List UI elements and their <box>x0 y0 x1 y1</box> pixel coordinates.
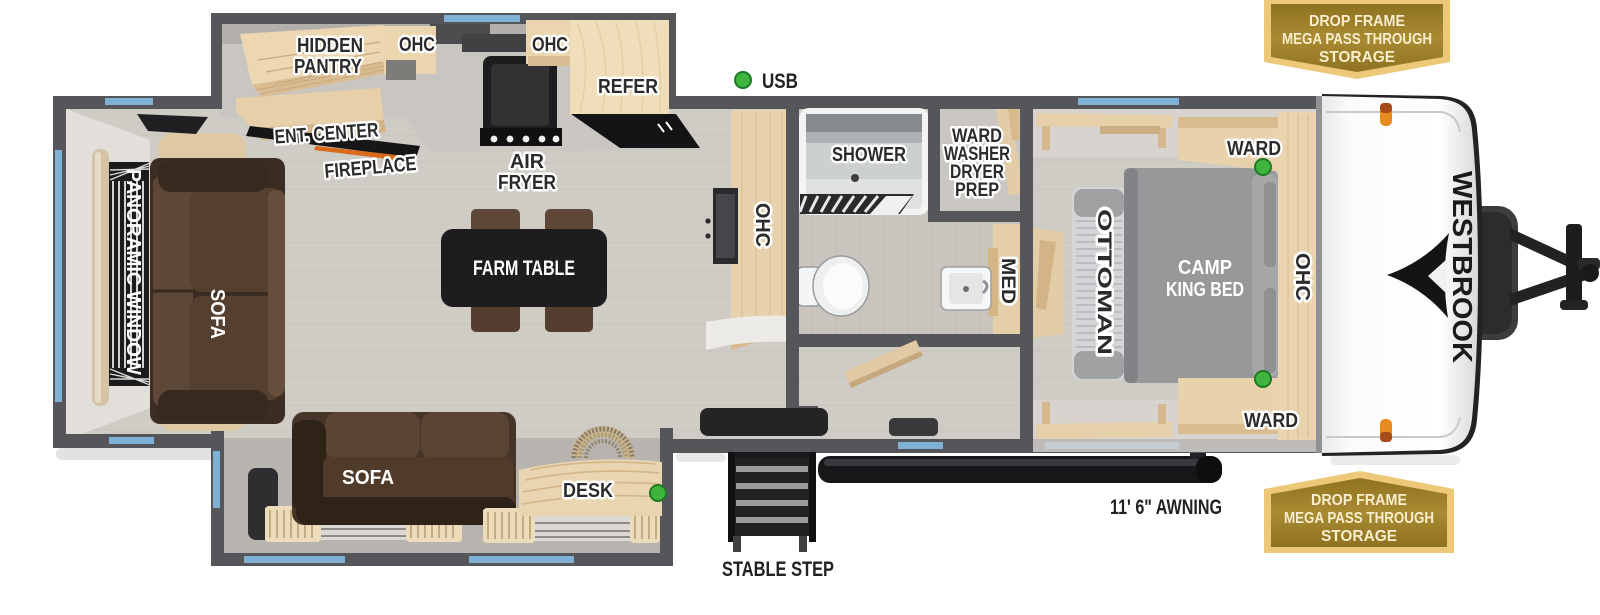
svg-text:PANTRY: PANTRY <box>294 56 363 78</box>
svg-text:FARM TABLE: FARM TABLE <box>473 257 575 280</box>
svg-text:OTTOMAN: OTTOMAN <box>1093 209 1114 355</box>
svg-text:SOFA: SOFA <box>342 467 394 489</box>
svg-text:AIR: AIR <box>510 151 545 173</box>
svg-text:OHC: OHC <box>1291 253 1313 301</box>
svg-text:STORAGE: STORAGE <box>1319 49 1395 66</box>
svg-text:WARD: WARD <box>1244 410 1298 432</box>
svg-text:SHOWER: SHOWER <box>832 144 906 166</box>
svg-text:STABLE STEP: STABLE STEP <box>722 558 834 581</box>
svg-text:STORAGE: STORAGE <box>1321 528 1397 545</box>
svg-text:DROP FRAME: DROP FRAME <box>1309 13 1405 30</box>
svg-text:11' 6" AWNING: 11' 6" AWNING <box>1110 496 1222 519</box>
svg-text:OHC: OHC <box>532 34 568 56</box>
svg-text:MEGA PASS THROUGH: MEGA PASS THROUGH <box>1284 510 1434 527</box>
svg-text:MED: MED <box>997 258 1018 304</box>
svg-text:WESTBROOK: WESTBROOK <box>1447 171 1478 363</box>
svg-text:WARD: WARD <box>1227 138 1281 160</box>
svg-text:USB: USB <box>762 70 798 93</box>
svg-text:DESK: DESK <box>563 480 613 502</box>
svg-text:PREP: PREP <box>955 180 999 201</box>
svg-text:OHC: OHC <box>399 34 435 56</box>
svg-text:HIDDEN: HIDDEN <box>297 35 363 57</box>
svg-text:DROP FRAME: DROP FRAME <box>1311 492 1407 509</box>
svg-text:REFER: REFER <box>598 76 658 98</box>
svg-text:MEGA PASS THROUGH: MEGA PASS THROUGH <box>1282 31 1432 48</box>
svg-text:CAMP: CAMP <box>1178 257 1232 279</box>
svg-text:PANORAMIC WINDOW: PANORAMIC WINDOW <box>122 169 144 375</box>
svg-text:KING BED: KING BED <box>1166 279 1244 301</box>
svg-text:OHC: OHC <box>751 203 773 247</box>
svg-text:SOFA: SOFA <box>206 289 228 339</box>
svg-text:FRYER: FRYER <box>498 172 556 194</box>
